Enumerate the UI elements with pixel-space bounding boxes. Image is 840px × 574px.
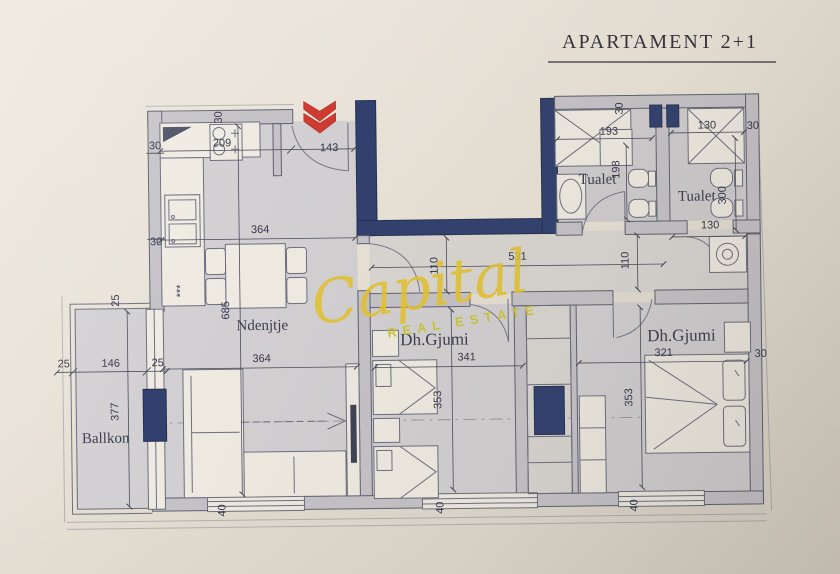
room-label-bathroom1: Tualet [579,172,618,188]
dim-living-length: 685 [220,301,232,320]
dim-balcony-wall-right: 25 [152,357,164,369]
dim-bath1-wall: 30 [614,102,626,114]
dim-sill-bedroom2: 40 [628,499,640,511]
dim-bath2-width-top: 130 [698,119,717,131]
dim-kitchen-width: 209 [213,137,232,149]
kitchen-stars: *** [175,284,187,298]
shaft-wall [357,218,556,235]
room-label-living: Ndenjtje [236,318,288,335]
wall [733,220,760,233]
room-label-bathroom2: Tualet [678,188,717,204]
plot-line [67,521,767,530]
dim-entry-wall: 30 [213,111,225,123]
wall [625,221,687,235]
dim-bath1-width: 193 [600,126,619,138]
shower-icon [688,108,745,164]
dim-sill-living: 40 [216,504,228,516]
bed-icon [374,446,439,499]
dim-bath2-width-bottom: 130 [701,219,720,231]
dim-entry-door: 143 [320,142,339,154]
duct [650,105,662,127]
wall [357,236,369,244]
wall [746,94,761,234]
dim-bath2-wall: 30 [747,120,759,132]
bed-icon [373,360,438,415]
wardrobe-icon [579,396,606,493]
dim-balcony-length: 377 [109,402,121,421]
nightstand-icon [373,418,399,442]
dim-living-width-mid: 364 [252,353,271,365]
shower-icon [555,109,633,166]
shaft-wall [356,101,378,236]
sink-icon [165,195,201,247]
dim-living-width-top: 364 [251,224,270,236]
nightstand-icon [724,322,750,352]
dim-sill-bedroom1: 40 [434,502,446,514]
dim-left-wall-upper: 30 [149,140,161,152]
plot-line [67,514,767,523]
balcony-window-panel [143,389,167,441]
room-label-bedroom2: Dh.Gjumi [647,325,716,345]
dim-balcony-wall-top: 25 [110,295,122,307]
plot-line [146,105,294,107]
wall [655,289,748,304]
dim-balcony-wall-left: 25 [58,358,70,370]
dim-bedroom2-width: 321 [654,347,673,359]
double-bed-icon [645,354,750,453]
room-label-balcony: Ballkon [82,431,130,448]
dim-balcony-width: 146 [102,358,121,370]
duct [667,105,679,127]
dim-left-wall-lower: 30 [150,236,162,248]
washing-machine-icon [709,236,746,272]
page-title: APARTAMENT 2+1 [562,31,758,53]
dim-bedroom2-wall: 30 [754,348,766,360]
dim-bath2-length: 300 [717,186,729,205]
dim-hall-width-right: 110 [619,252,631,270]
dim-bedroom2-length: 353 [623,388,635,407]
plot-line [62,296,65,522]
wall [556,222,582,235]
wall [747,234,763,503]
dim-bedroom1-length: 353 [432,391,444,410]
floor-plan-drawing: APARTAMENT 2+1 [0,0,840,574]
dim-bedroom1-width: 341 [457,351,476,363]
floor-plan-photo: APARTAMENT 2+1 [0,0,840,574]
